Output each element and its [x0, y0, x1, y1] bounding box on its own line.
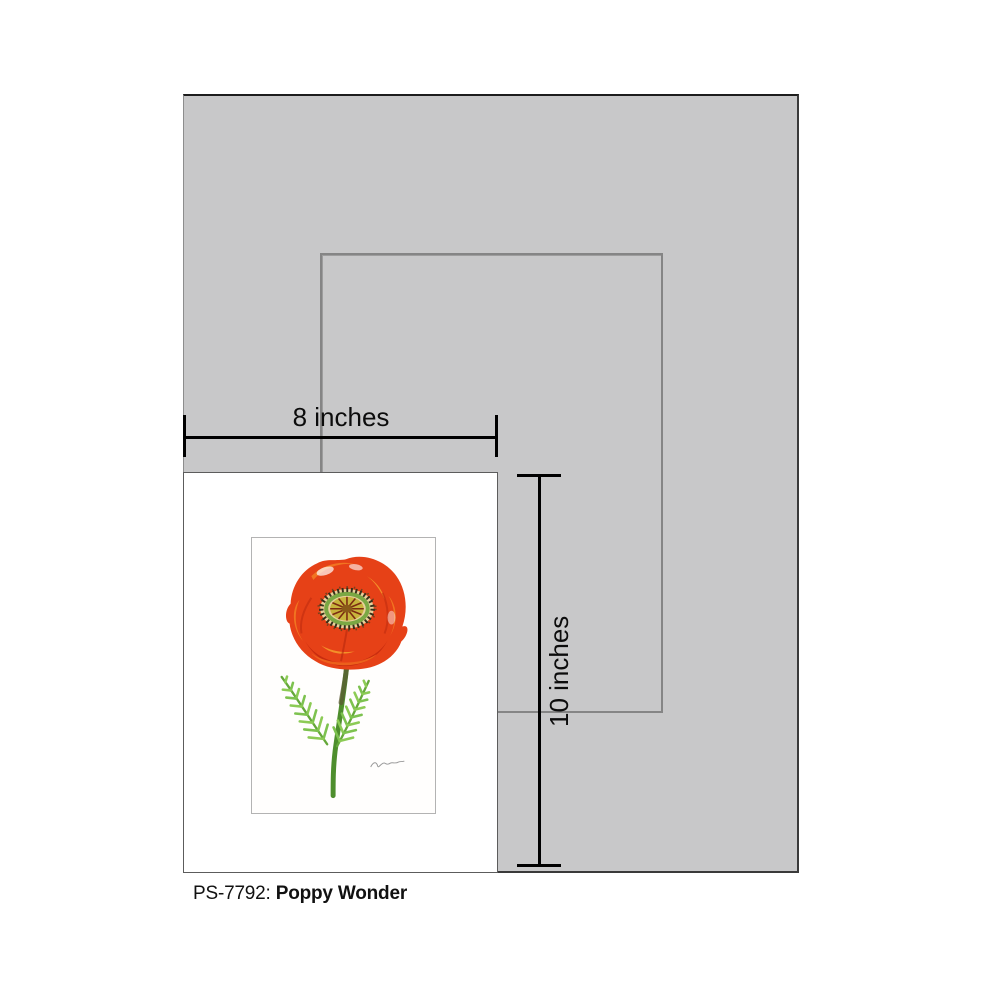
print-card: [183, 472, 498, 873]
height-dimension-line: [538, 474, 541, 867]
width-dimension-line: [184, 436, 497, 439]
height-dimension-tick-bottom: [517, 864, 561, 867]
caption: PS-7792: Poppy Wonder: [193, 883, 407, 906]
art-print: [251, 537, 436, 814]
product-code: PS-7792:: [193, 883, 271, 904]
width-dimension-tick-left: [183, 415, 186, 457]
product-title: Poppy Wonder: [276, 883, 407, 904]
width-dimension-tick-right: [495, 415, 498, 457]
width-dimension-label: 8 inches: [191, 404, 491, 430]
size-diagram: 8 inches 10 inches: [0, 0, 984, 984]
height-dimension-tick-top: [517, 474, 561, 477]
artist-signature: [371, 761, 405, 767]
poppy-flower-illustration: [252, 538, 435, 813]
height-dimension-label: 10 inches: [546, 616, 572, 727]
left-fern-leaf: [282, 677, 328, 745]
